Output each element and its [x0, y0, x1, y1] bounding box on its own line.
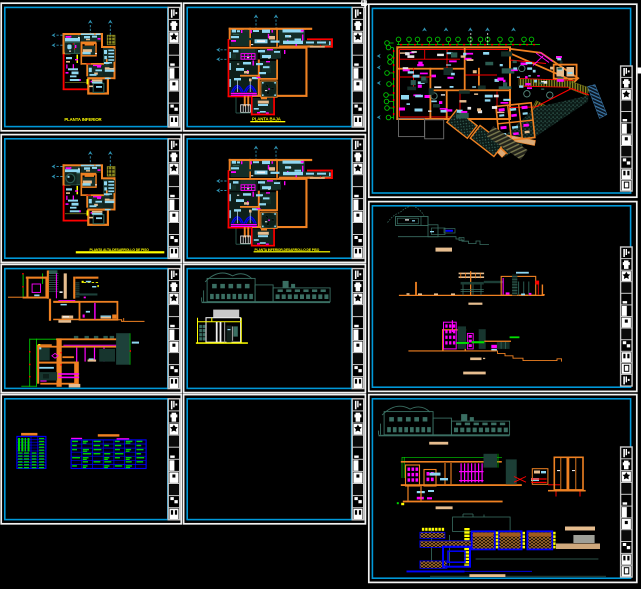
svg-text:PLANTA INFERIOR: PLANTA INFERIOR — [64, 117, 102, 122]
svg-text:PLANTA BAJA: PLANTA BAJA — [252, 117, 281, 122]
